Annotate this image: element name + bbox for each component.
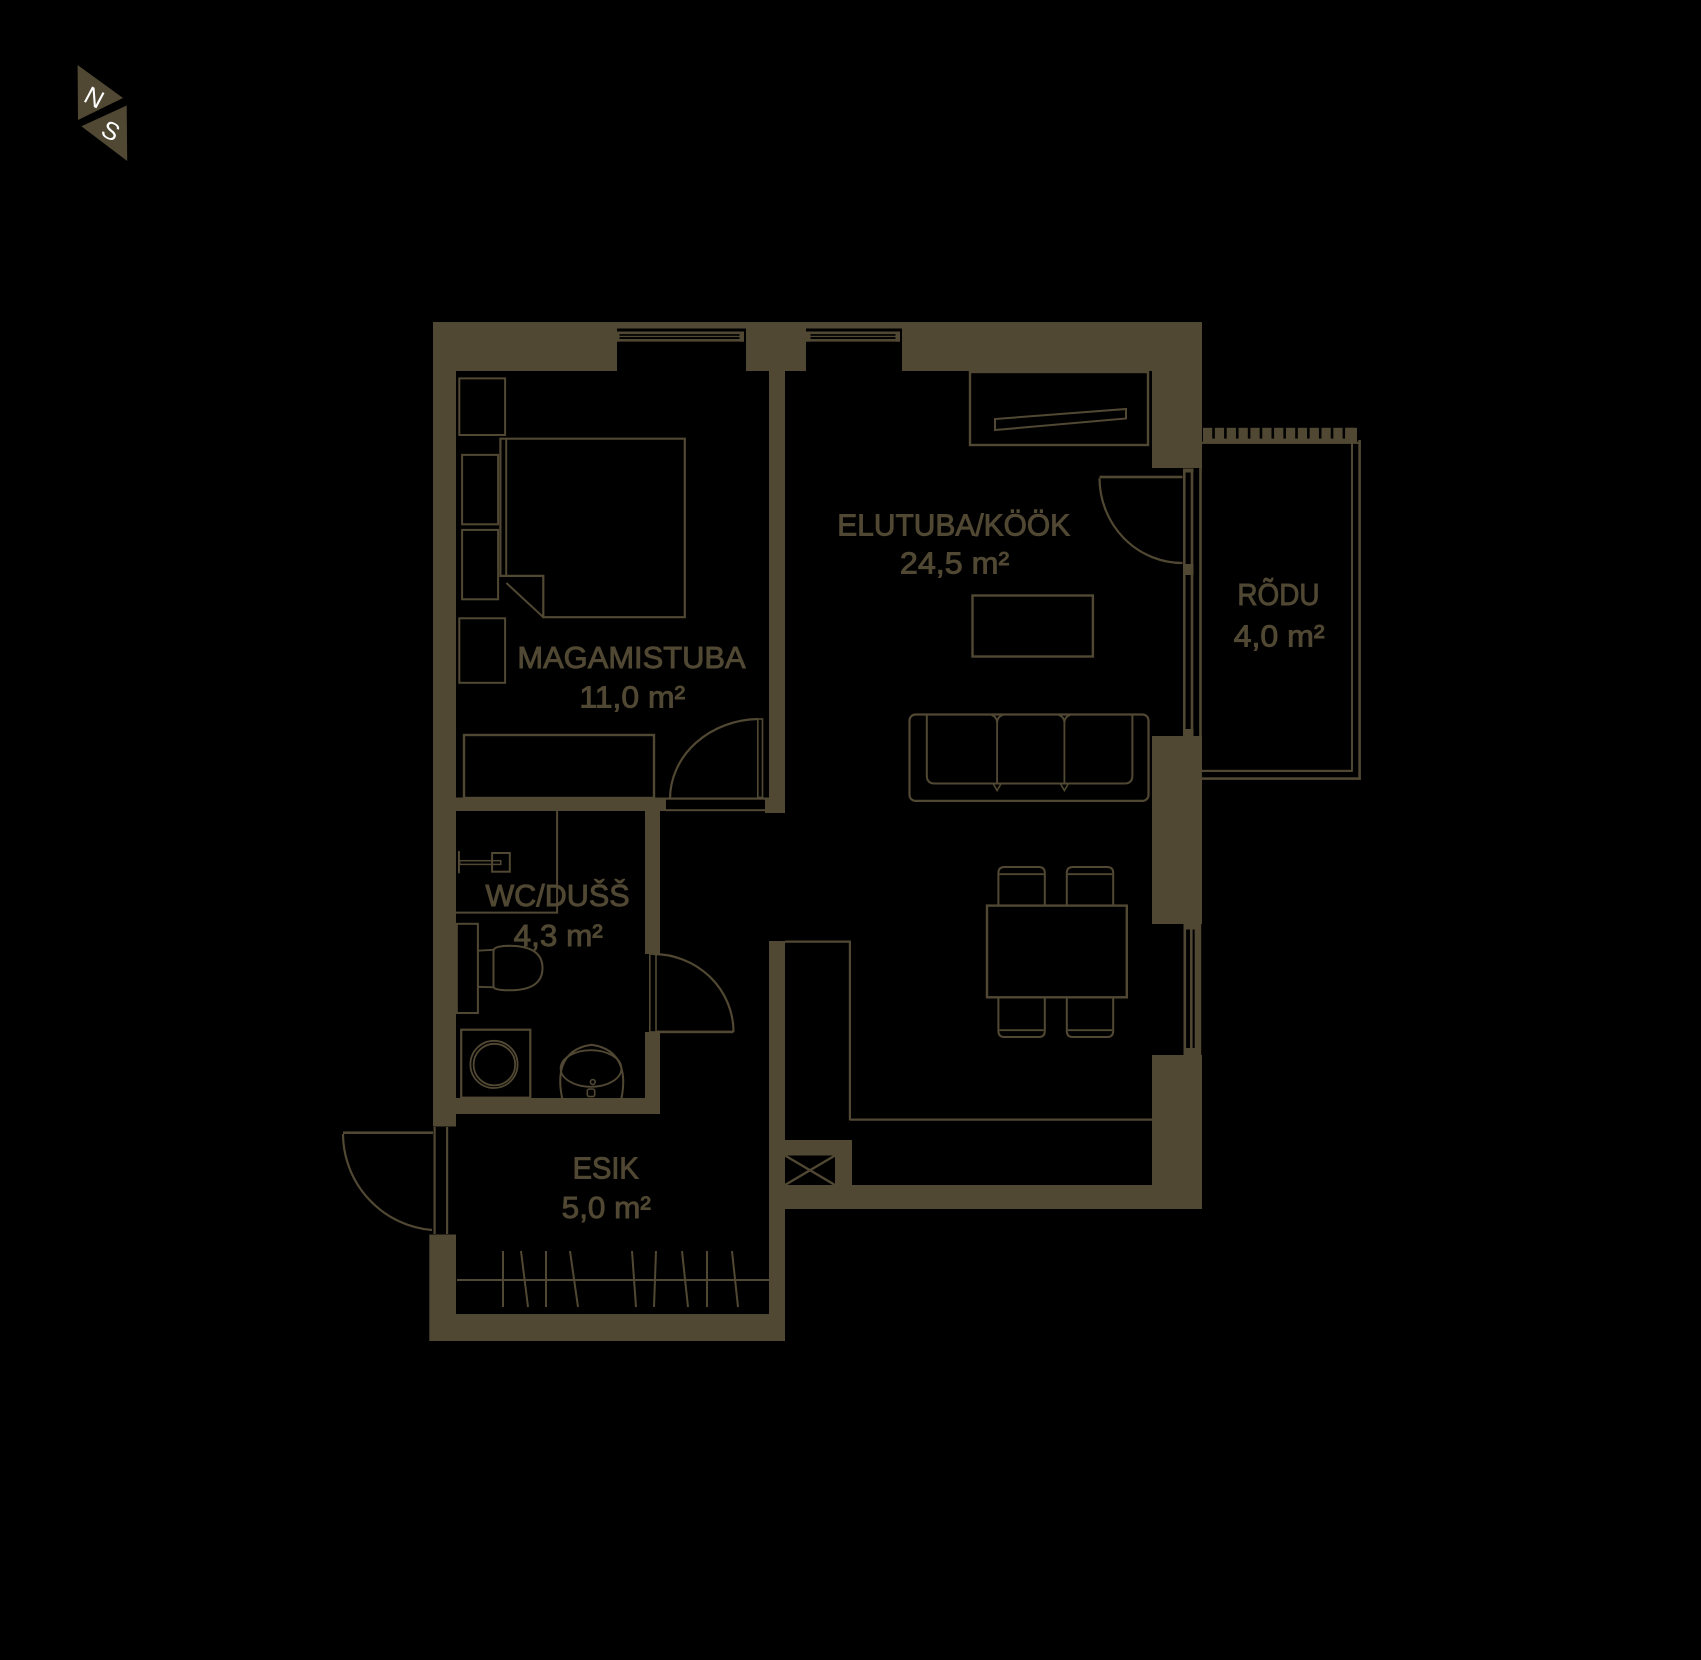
svg-text:ELUTUBA/KÖÖK: ELUTUBA/KÖÖK (837, 509, 1070, 543)
svg-text:24,5 m²: 24,5 m² (900, 547, 1009, 581)
svg-text:WC/DUŠŠ: WC/DUŠŠ (485, 878, 629, 913)
svg-text:MAGAMISTUBA: MAGAMISTUBA (517, 641, 746, 675)
svg-text:RÕDU: RÕDU (1237, 577, 1319, 612)
svg-text:4,0 m²: 4,0 m² (1234, 620, 1325, 654)
svg-text:ESIK: ESIK (573, 1152, 639, 1186)
svg-text:11,0 m²: 11,0 m² (579, 681, 685, 715)
svg-text:4,3 m²: 4,3 m² (514, 919, 603, 953)
svg-text:5,0 m²: 5,0 m² (562, 1191, 651, 1225)
